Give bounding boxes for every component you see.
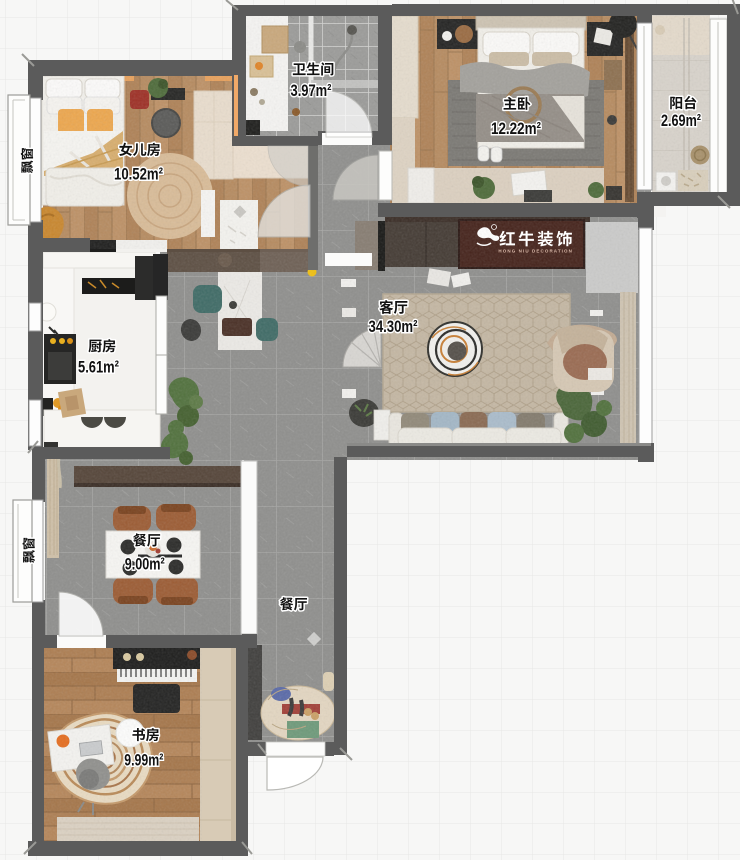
svg-text:5.61m²: 5.61m² — [78, 358, 119, 377]
svg-text:9.99m²: 9.99m² — [124, 751, 163, 770]
svg-text:9.00m²: 9.00m² — [125, 555, 165, 574]
svg-text:10.52m²: 10.52m² — [114, 165, 163, 184]
svg-text:HONG NIU DECORATION: HONG NIU DECORATION — [498, 249, 573, 254]
svg-text:34.30m²: 34.30m² — [369, 317, 418, 336]
svg-text:12.22m²: 12.22m² — [491, 119, 541, 138]
svg-text:3.97m²: 3.97m² — [291, 81, 332, 100]
svg-text:2.69m²: 2.69m² — [661, 111, 701, 130]
